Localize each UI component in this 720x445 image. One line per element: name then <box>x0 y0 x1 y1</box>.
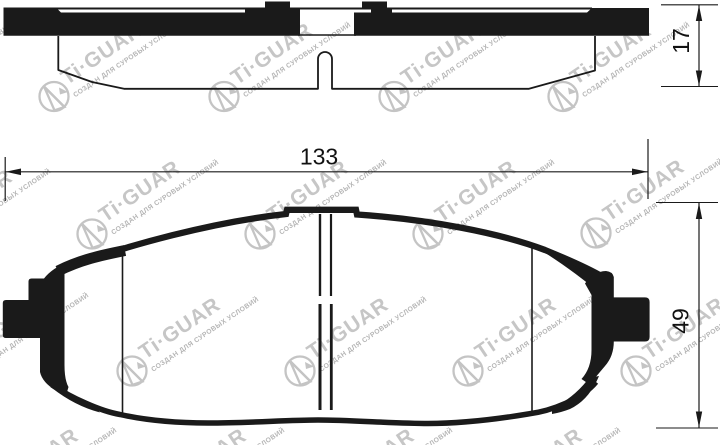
svg-text:133: 133 <box>300 144 338 170</box>
svg-text:17: 17 <box>668 28 694 54</box>
svg-text:49: 49 <box>668 308 694 334</box>
